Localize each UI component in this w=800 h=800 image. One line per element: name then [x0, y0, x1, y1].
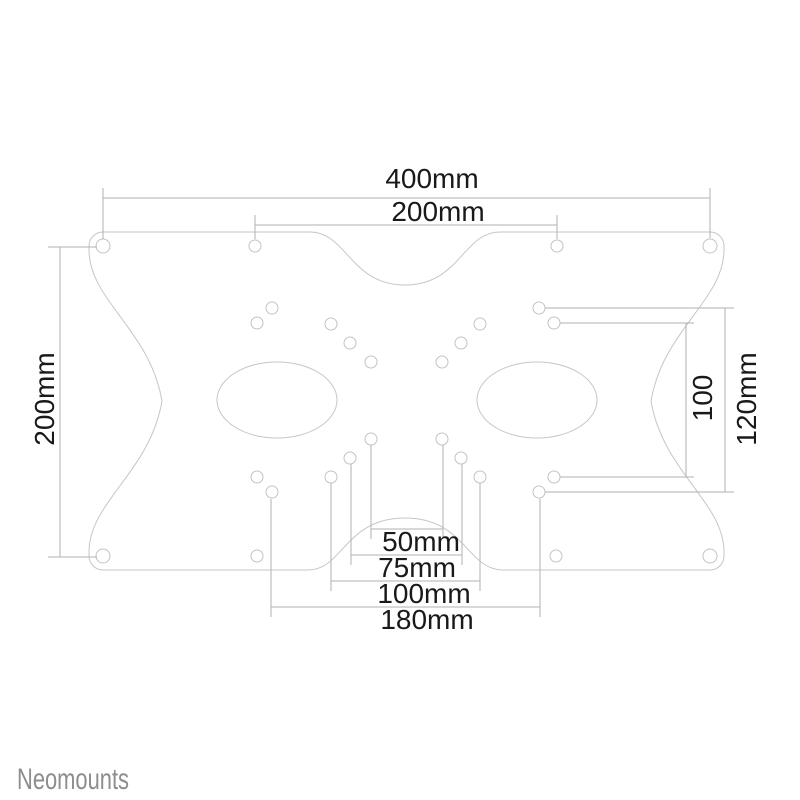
mount-hole [550, 550, 562, 562]
oval-cutout-right [477, 362, 597, 438]
mount-hole [474, 318, 486, 330]
dimension-label-120mm-right: 120mm [731, 352, 762, 445]
mount-hole [266, 486, 278, 498]
technical-drawing-canvas: 400mm 200mm 200mm 100 120mm [0, 0, 800, 800]
mount-hole [548, 317, 560, 329]
mount-hole [548, 471, 560, 483]
dimension-120mm-right: 120mm [545, 308, 762, 492]
dimension-200mm-top: 200mm [255, 196, 557, 239]
side-pair-holes [251, 302, 560, 498]
mount-hole [436, 433, 448, 445]
mount-hole [251, 317, 263, 329]
dimension-label-100-right: 100 [687, 375, 718, 422]
mount-hole [96, 549, 110, 563]
mount-hole [251, 471, 263, 483]
dimension-50mm-bottom: 50mm [371, 445, 460, 557]
brand-logo: Neomounts [17, 763, 129, 796]
dimension-100-right: 100 [560, 323, 718, 477]
mount-hole [249, 240, 261, 252]
mount-hole [266, 302, 278, 314]
mount-hole [551, 240, 563, 252]
adapter-plate-diagram: 400mm 200mm 200mm 100 120mm [0, 0, 800, 800]
mount-hole [344, 337, 356, 349]
mount-hole [703, 239, 717, 253]
dimension-label-200mm-top: 200mm [391, 196, 484, 227]
mount-hole [455, 337, 467, 349]
mount-hole [474, 471, 486, 483]
mount-hole [325, 318, 337, 330]
mount-hole [455, 452, 467, 464]
dimension-200mm-left: 200mm [29, 247, 97, 557]
diagonal-pattern-holes [325, 318, 486, 483]
dimension-75mm-bottom: 75mm [351, 464, 462, 583]
plate-outline [89, 232, 724, 570]
dimension-label-400mm: 400mm [385, 163, 478, 194]
mount-hole [365, 356, 377, 368]
oval-cutout-left [217, 362, 337, 438]
mount-hole [703, 549, 717, 563]
mount-hole [325, 471, 337, 483]
corner-mount-holes [96, 239, 717, 563]
mount-hole [344, 452, 356, 464]
mount-hole [436, 356, 448, 368]
dimension-label-180mm: 180mm [380, 604, 473, 635]
dimension-label-200mm-left: 200mm [29, 352, 60, 445]
mount-hole [96, 239, 110, 253]
mount-hole [365, 433, 377, 445]
edge-mount-holes [249, 240, 563, 562]
mount-hole [533, 486, 545, 498]
mount-hole [533, 302, 545, 314]
mount-hole [251, 550, 263, 562]
